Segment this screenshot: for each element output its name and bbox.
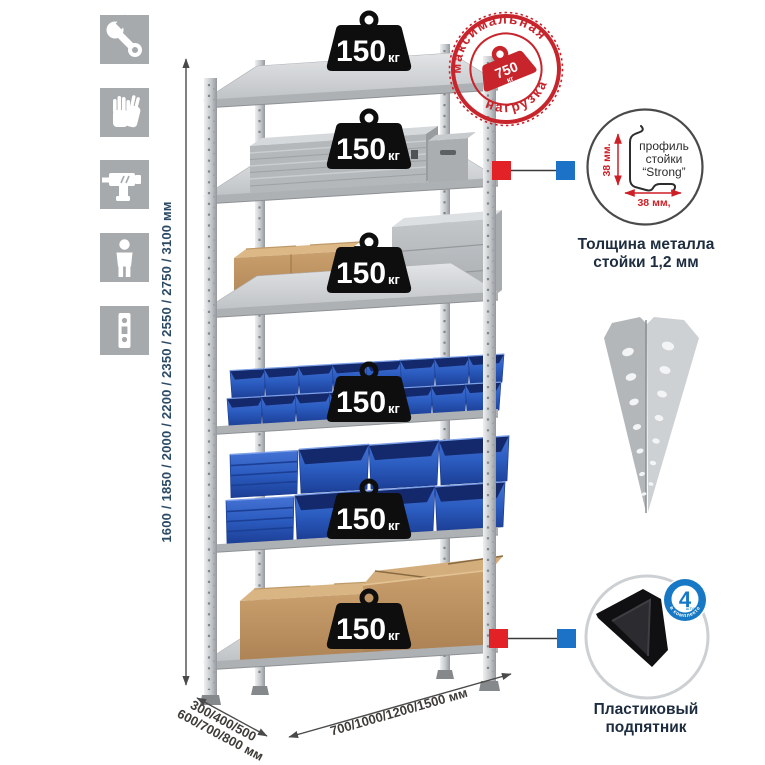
depth-dimension: 300/400/500 600/700/800 мм <box>175 694 273 764</box>
plastic-foot-detail: 4 штуки в комплекте Пластиковый подпятни… <box>586 576 708 736</box>
svg-text:150: 150 <box>336 503 386 536</box>
load-badge-1: 150 кг <box>327 13 411 71</box>
profile-caption-2: стойки 1,2 мм <box>593 254 698 271</box>
width-dimension: 700/1000/1200/1500 мм <box>289 674 511 738</box>
corner-post-photo <box>604 317 699 513</box>
blue-marker-bottom <box>557 629 576 648</box>
shelf-load-badges: 150 кг 150 кг 150 кг 150 кг 150 кг 150 к… <box>327 13 411 649</box>
foot-caption-2: подпятник <box>605 719 686 736</box>
height-dimension-label: 1600 / 1850 / 2000 / 2200 / 2350 / 2550 … <box>159 201 174 542</box>
product-infographic: 1600 / 1850 / 2000 / 2200 / 2350 / 2550 … <box>0 0 765 765</box>
svg-text:кг: кг <box>388 518 401 533</box>
svg-text:кг: кг <box>388 628 401 643</box>
quantity-badge: 4 штуки в комплекте <box>663 578 708 623</box>
upright-profile-icon <box>100 306 149 355</box>
profile-caption-1: Толщина металла <box>578 236 715 253</box>
svg-text:стойки: стойки <box>646 152 683 166</box>
svg-text:кг: кг <box>388 272 401 287</box>
profile-vertical-dim: 38 мм. <box>601 143 613 176</box>
svg-text:150: 150 <box>336 133 386 166</box>
gloves-icon <box>100 88 149 137</box>
svg-text:кг: кг <box>388 148 401 163</box>
svg-text:кг: кг <box>388 50 401 65</box>
profile-detail: 38 мм. 38 мм, профиль стойки “Strong” То… <box>578 110 715 272</box>
svg-text:профиль: профиль <box>639 139 689 153</box>
foot-caption-1: Пластиковый <box>594 701 699 718</box>
width-dimension-label: 700/1000/1200/1500 мм <box>328 685 469 739</box>
feature-icons <box>100 14 149 355</box>
max-load-stamp: максимальная нагрузка 750 кг <box>432 0 580 143</box>
svg-text:150: 150 <box>336 35 386 68</box>
height-dimension: 1600 / 1850 / 2000 / 2200 / 2350 / 2550 … <box>159 59 186 685</box>
red-marker-top <box>492 161 511 180</box>
profile-horizontal-dim: 38 мм, <box>637 197 670 209</box>
svg-text:150: 150 <box>336 257 386 290</box>
load-badge-2: 150 кг <box>327 111 411 169</box>
blue-marker-top <box>556 161 575 180</box>
person-icon <box>100 233 149 282</box>
svg-text:“Strong”: “Strong” <box>642 165 685 179</box>
svg-text:150: 150 <box>336 613 386 646</box>
red-marker-bottom <box>489 629 508 648</box>
svg-text:кг: кг <box>388 401 401 416</box>
wrench-icon <box>100 14 149 64</box>
callout-connectors <box>489 161 576 648</box>
drill-icon <box>100 160 149 209</box>
svg-text:150: 150 <box>336 386 386 419</box>
